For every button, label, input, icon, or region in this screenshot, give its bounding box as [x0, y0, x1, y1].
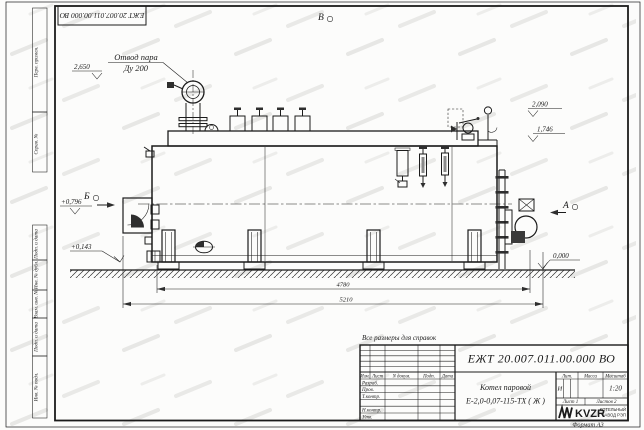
side-stamp-label: Справ. № [34, 133, 40, 154]
view-a-text: А [562, 201, 569, 211]
row-prov: Пров. [361, 388, 374, 393]
steam-outlet-label-line2: Ду 200 [123, 63, 149, 73]
flipped-designation-text: ЕЖТ 20.007.011.00.000 ВО [59, 11, 145, 20]
side-stamp-label: Инв. № подл. [33, 373, 40, 403]
side-stamp-label: Перв. примен. [34, 47, 40, 79]
format-label: Формат А3 [572, 421, 603, 428]
dimension-text: 5210 [340, 297, 354, 304]
sheets-total: Листов 2 [595, 400, 617, 405]
side-stamp-label: Подп. и дата [33, 229, 40, 260]
elevation-text: +0,796 [61, 198, 82, 206]
elevation-text: +0,143 [71, 243, 92, 251]
drawing-designation: ЕЖТ 20.007.011.00.000 ВО [467, 352, 616, 366]
steam-outlet-label-line1: Отвод пара [114, 52, 157, 62]
side-stamp-label: Подп. и дата [33, 322, 40, 353]
col-izm-header: Изм. [359, 374, 369, 379]
lit-header: Лит. [561, 374, 572, 379]
ground [70, 270, 575, 278]
col-list-header: Лист [371, 374, 384, 379]
side-stamp-label: Инв. № дубл. [33, 261, 40, 290]
view-b-text: Б [83, 192, 90, 202]
dimension-text: 4780 [337, 282, 351, 289]
drawing-sheet: Перв. примен. Справ. № Подп. и дата Инв.… [0, 0, 644, 430]
elevation-text: 1,746 [537, 126, 553, 134]
logo-subtext-2: ЗАВОД РЭП [602, 413, 626, 418]
product-name-line2: Е-2,0-0,07-115-ТХ ( Ж ) [465, 397, 545, 406]
lit-value: И [556, 386, 562, 393]
sheet-number: Лист 1 [562, 400, 578, 405]
logo-subtext-1: КОТЕЛЬНЫЙ [600, 407, 626, 412]
boiler-drawing-svg: Перв. примен. Справ. № Подп. и дата Инв.… [0, 0, 644, 430]
row-razrab: Разраб. [361, 381, 378, 386]
col-doc-header: N докум. [392, 374, 411, 379]
view-v-text: В [318, 13, 324, 23]
row-tkontr: Т.контр. [362, 395, 380, 400]
row-utv: Утв. [362, 415, 372, 420]
elevation-text: 2,090 [532, 101, 548, 109]
mass-header: Масса [583, 374, 597, 379]
col-podp-header: Подп. [422, 374, 435, 379]
scale-header: Масштаб [604, 374, 626, 379]
reference-note: Все размеры для справок [362, 334, 437, 342]
row-nkontr: Н.контр. [361, 409, 381, 414]
elevation-text: 2,650 [74, 63, 90, 71]
product-name-line1: Котел паровой [479, 383, 531, 392]
valve-handle [167, 82, 174, 88]
side-stamp-label: Взам. инв. № [34, 290, 40, 319]
elevation-text: 0,000 [553, 252, 569, 260]
scale-value: 1:20 [609, 385, 622, 393]
col-data-header: Дата [441, 374, 454, 379]
